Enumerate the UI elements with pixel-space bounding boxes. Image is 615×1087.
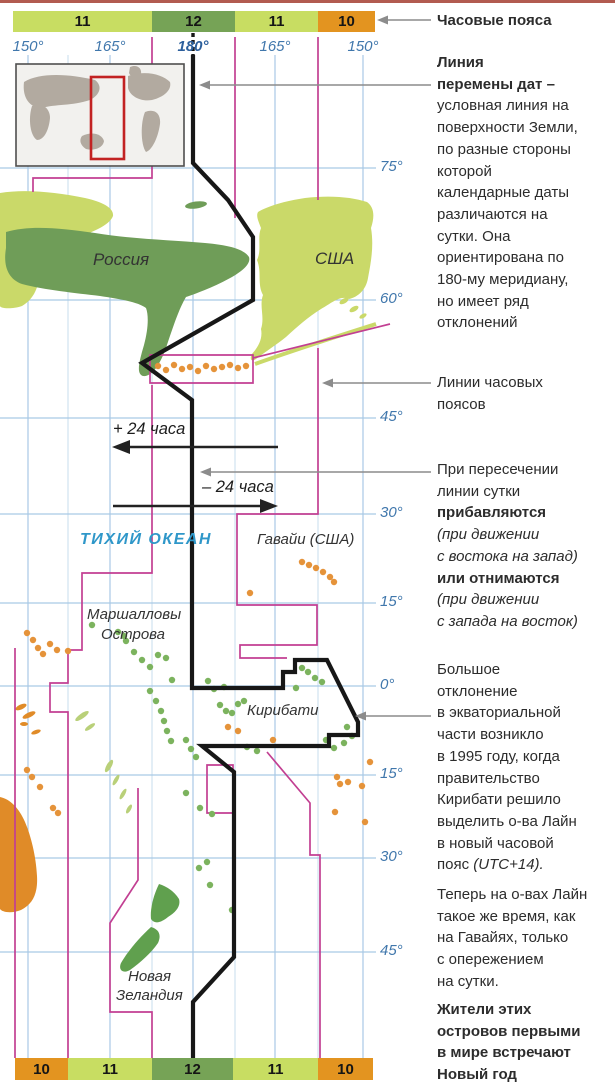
crossing-note-line: или отнимаются [437,568,614,590]
island-dot [306,562,312,568]
latitude-label: 15° [380,593,414,610]
dateline-infographic: 111211101011121110 75°60°45°30°15°0°15°3… [0,0,615,1087]
island-dot [235,728,241,734]
dateline-note-line: по разные стороны [437,139,614,161]
island-dot [147,664,153,670]
island-dot [164,728,170,734]
timezones-label-line: Часовые пояса [437,10,614,32]
island-dot [139,657,145,663]
annotation-text: пояс [437,856,473,873]
island-dot [225,724,231,730]
annotation-text: Жители этих [437,1001,531,1018]
annotation-text: календарные даты [437,184,569,201]
dateline-note-line: различаются на [437,204,614,226]
map-label: Гавайи (США) [257,531,354,548]
map-label: Россия [93,250,149,270]
annotation-text: (при движении [437,591,539,608]
solomon-islands3 [20,722,28,726]
island-dot [359,783,365,789]
deviation-note-line: в 1995 году, когда [437,746,614,768]
island-dot [183,737,189,743]
newyear-note-line: островов первыми [437,1021,614,1043]
annotation-text: Новый год [437,1066,517,1083]
line-islands-note: Теперь на о-вах Лайнтакое же время, какн… [437,884,614,993]
island-dot [254,748,260,754]
dateline-note-line: календарные даты [437,182,614,204]
annotation-text: в 1995 году, когда [437,748,560,765]
deviation-note-line: части возникло [437,724,614,746]
dateline-note: Линияперемены дат –условная линия напове… [437,52,614,334]
longitude-label: 180° [170,38,216,55]
annotation-text: отклонений [437,314,518,331]
island-dot [345,779,351,785]
timezone-segment-11: 11 [233,1058,318,1080]
island-dot [313,565,319,571]
annotation-text: сутки. Она [437,228,510,245]
tonga-sliver2 [125,804,133,815]
island-dot [207,882,213,888]
deviation-note-line: в экваториальной [437,702,614,724]
annotation-text: поверхности Земли, [437,119,578,136]
latitude-label: 30° [380,848,414,865]
nz-south-island [120,927,159,972]
annotation-text: в мире встречают [437,1044,571,1061]
island-dot [40,651,46,657]
island-dot [161,718,167,724]
dateline-note-line: которой [437,161,614,183]
island-dot [131,649,137,655]
timezone-segment-10: 10 [318,1058,373,1080]
deviation-note-line: в новый часовой [437,833,614,855]
timezone-segment-11: 11 [68,1058,152,1080]
island-dot [35,645,41,651]
island-dot [204,859,210,865]
island-dot [65,648,71,654]
new-caledonia-sliver [103,759,114,774]
vanuatu-sliver2 [84,722,96,732]
island-dot [331,745,337,751]
dateline-note-line: поверхности Земли, [437,117,614,139]
island-dot [227,362,233,368]
deviation-note-line: отклонение [437,681,614,703]
timezone-segment-10: 10 [318,11,375,32]
callout-arrows [199,16,431,721]
annotation-text: Большое [437,661,500,678]
island-dot [187,364,193,370]
world-inset-map [16,64,184,166]
solomon-islands [15,702,28,712]
zonelines-note: Линии часовыхпоясов [437,372,614,415]
alaska-se-island [348,304,359,313]
deviation-note-line: Большое [437,659,614,681]
annotation-text-italic: (UTC+14). [473,856,543,873]
map-label: США [315,249,354,269]
island-dot [188,746,194,752]
dateline-callout-arrowhead [199,81,210,90]
island-dot [344,724,350,730]
longitude-label: 165° [252,38,298,55]
timezone-segment-11: 11 [235,11,318,32]
deviation-note-line: выделить о-ва Лайн [437,811,614,833]
annotation-text: ориентирована по [437,249,564,266]
island-dot [197,805,203,811]
island-dot [229,710,235,716]
alaska-landmass [251,197,374,361]
island-dot [195,368,201,374]
newyear-note-line: Новый год [437,1064,614,1086]
island-dot [312,675,318,681]
line-islands-note-line: с опережением [437,949,614,971]
island-dot [55,810,61,816]
annotation-text: условная линия на [437,97,569,114]
annotation-text: но имеет ряд [437,293,529,310]
island-dot [24,767,30,773]
timezones-label: Часовые пояса [437,10,614,32]
dateline-note-line: Линия [437,52,614,74]
deviation-note-line: правительство [437,768,614,790]
line-islands-note-line: такое же время, как [437,906,614,928]
island-dot [223,708,229,714]
annotation-text: поясов [437,396,486,413]
crossing-note-line: с востока на запад) [437,546,614,568]
island-dot [235,365,241,371]
annotation-text: на сутки. [437,973,499,990]
latitude-label: 75° [380,158,414,175]
crossing-note-line: При пересечении [437,459,614,481]
latitude-label: 15° [380,765,414,782]
annotation-text: Часовые пояса [437,12,552,29]
latitude-label: 30° [380,504,414,521]
west-arrowhead [112,440,130,454]
island-dot [163,367,169,373]
map-label: + 24 часа [113,420,185,439]
annotation-text: с опережением [437,951,544,968]
newyear-note-line: в мире встречают [437,1042,614,1064]
longitude-label: 150° [5,38,51,55]
island-dot [163,655,169,661]
annotation-text: 180-му меридиану, [437,271,568,288]
st-lawrence-island [185,200,208,210]
annotation-text: (при движении [437,526,539,543]
island-dot [327,574,333,580]
deviation-note-line: пояс (UTC+14). [437,854,614,876]
annotation-text: в экваториальной [437,704,561,721]
map-label: Маршалловы [87,606,181,623]
dateline-note-line: отклонений [437,312,614,334]
island-dot [332,809,338,815]
island-dot [168,738,174,744]
dateline-note-line: но имеет ряд [437,291,614,313]
latitude-label: 45° [380,408,414,425]
crossing-note-line: прибавляются [437,502,614,524]
longitude-label: 165° [87,38,133,55]
annotation-text: выделить о-ва Лайн [437,813,577,830]
annotation-text: такое же время, как [437,908,575,925]
crossing-note-line: с запада на восток) [437,611,614,633]
zonelines-note-line: поясов [437,394,614,416]
timezone-segment-12: 12 [152,1058,233,1080]
annotation-text: Линия [437,54,484,71]
annotation-text: островов первыми [437,1023,580,1040]
fiji-sliver [111,774,120,786]
island-dot [235,701,241,707]
solomon-islands2 [22,710,37,720]
line-islands-note-line: на сутки. [437,971,614,993]
nz-north-island [151,884,180,922]
crossing-callout-arrowhead [200,468,211,477]
island-dot [270,737,276,743]
island-dot [217,702,223,708]
island-dot [193,754,199,760]
island-dots [24,362,373,913]
island-dot [29,774,35,780]
timezone-segment-12: 12 [152,11,235,32]
island-dot [299,665,305,671]
top-border [0,0,615,3]
line-islands-note-line: Теперь на о-вах Лайн [437,884,614,906]
island-dot [362,819,368,825]
annotation-text: по разные стороны [437,141,571,158]
annotation-text: Теперь на о-вах Лайн [437,886,587,903]
solomon-islands4 [31,728,42,735]
island-dot [299,559,305,565]
annotation-text: правительство [437,770,540,787]
annotation-text: Кирибати решило [437,791,561,808]
island-dot [293,685,299,691]
island-dot [147,688,153,694]
island-dot [196,865,202,871]
island-dot [50,805,56,811]
island-dot [367,759,373,765]
island-dot [209,811,215,817]
latitude-label: 45° [380,942,414,959]
island-dot [341,740,347,746]
island-dot [331,579,337,585]
island-dot [219,364,225,370]
dateline-note-line: сутки. Она [437,226,614,248]
map-label: Кирибати [247,702,318,719]
line-islands-note-line: на Гавайях, только [437,927,614,949]
annotation-text: на Гавайях, только [437,929,568,946]
island-dot [183,790,189,796]
island-dot [211,366,217,372]
day-shift-arrows [112,440,278,513]
deviation-note: Большоеотклонениев экваториальнойчасти в… [437,659,614,876]
annotation-text: с востока на запад) [437,548,578,565]
dateline-note-line: 180-му меридиану, [437,269,614,291]
map-label: ТИХИЙ ОКЕАН [80,531,212,549]
island-dot [30,637,36,643]
dateline-note-line: условная линия на [437,95,614,117]
annotation-text: перемены дат – [437,76,555,93]
newyear-note: Жители этихостровов первымив мире встреч… [437,999,614,1086]
island-dot [320,569,326,575]
island-dot [158,708,164,714]
island-dot [205,678,211,684]
dateline-note-line: перемены дат – [437,74,614,96]
map-label: Новая [128,968,171,985]
annotation-text: которой [437,163,492,180]
island-dot [243,363,249,369]
annotation-text: линии сутки [437,483,520,500]
island-dot [37,784,43,790]
island-dot [155,363,161,369]
island-dot [153,698,159,704]
map-label: – 24 часа [202,478,274,497]
australia-edge [0,797,37,912]
annotation-text: различаются на [437,206,548,223]
deviation-note-line: Кирибати решило [437,789,614,811]
island-dot [247,590,253,596]
annotation-text: Линии часовых [437,374,543,391]
island-dot [169,677,175,683]
annotation-text: прибавляются [437,504,546,521]
crossing-note-line: (при движении [437,589,614,611]
island-dot [171,362,177,368]
island-dot [334,774,340,780]
island-dot [155,652,161,658]
island-dot [24,630,30,636]
island-dot [47,641,53,647]
annotation-text: или отнимаются [437,570,559,587]
map-label: Зеландия [116,987,183,1004]
island-dot [179,366,185,372]
timezone-segment-10: 10 [15,1058,68,1080]
annotation-text: отклонение [437,683,518,700]
crossing-note-line: линии сутки [437,481,614,503]
island-dot [337,781,343,787]
newyear-note-line: Жители этих [437,999,614,1021]
island-dot [54,647,60,653]
zonelines-note-line: Линии часовых [437,372,614,394]
annotation-text: в новый часовой [437,835,554,852]
island-dot [305,669,311,675]
latitude-label: 60° [380,290,414,307]
map-label: Острова [101,626,165,643]
latitude-label: 0° [380,676,414,693]
longitude-label: 150° [340,38,386,55]
island-dot [203,363,209,369]
crossing-note-line: (при движении [437,524,614,546]
timezone-segment-11: 11 [13,11,152,32]
island-dot [319,679,325,685]
vanuatu-sliver [74,709,90,722]
annotation-text: с запада на восток) [437,613,578,630]
annotation-text: части возникло [437,726,544,743]
dateline-note-line: ориентирована по [437,247,614,269]
crossing-note: При пересечениилинии суткиприбавляются(п… [437,459,614,633]
zonelines-callout-arrowhead [322,379,333,388]
tonga-sliver [118,788,127,800]
annotation-text: При пересечении [437,461,558,478]
